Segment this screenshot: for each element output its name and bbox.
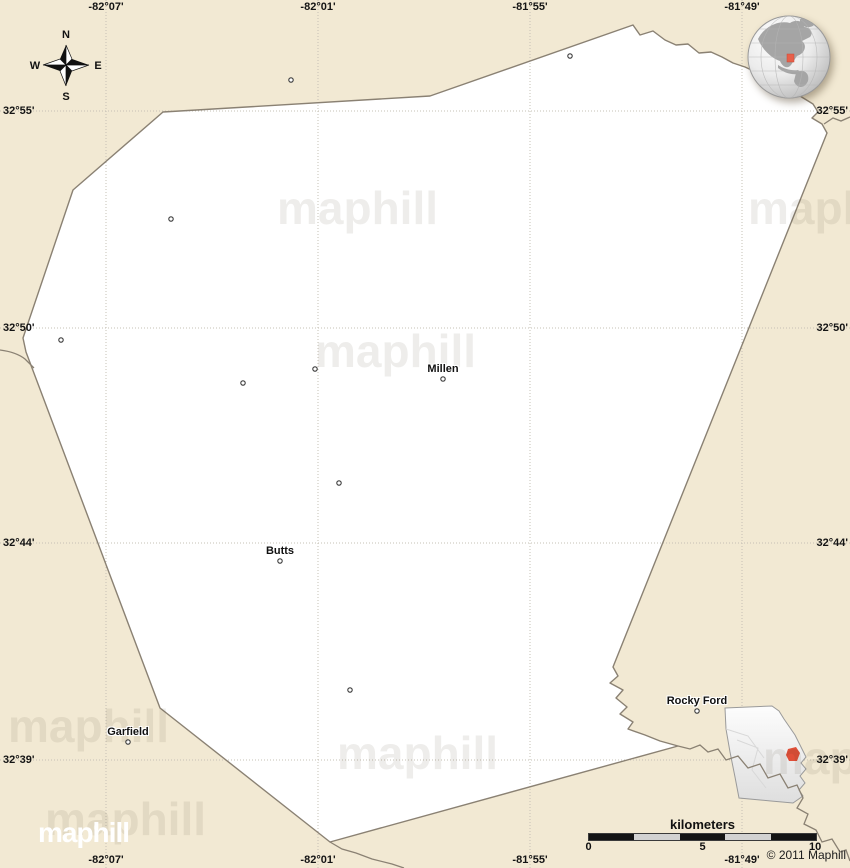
latitude-label-right: 32°39' [817,754,849,766]
settlement-dot [169,217,173,221]
compass-rose: N E S W [26,22,111,107]
town-dot [126,740,130,744]
settlement-dot [59,338,63,342]
settlement-dot [289,78,293,82]
town-label: Butts [266,545,294,557]
settlement-dot [313,367,317,371]
longitude-label-top: -82°01' [300,1,335,13]
latitude-label-left: 32°44' [3,537,35,549]
map-stage: N E S W maphill [0,0,850,868]
latitude-label-right: 32°44' [817,537,849,549]
scale-segment [634,834,679,840]
town-label: Rocky Ford [667,695,728,707]
longitude-label-top: -82°07' [88,1,123,13]
maphill-logo-text: maphill [38,819,129,847]
scale-tick-5: 5 [699,841,705,853]
scale-tick-0: 0 [586,841,592,853]
copyright-notice: © 2011 Maphill [767,848,846,862]
settlement-dot [337,481,341,485]
scale-bar-unit-label: kilometers [588,817,817,832]
compass-south-label: S [62,91,69,103]
latitude-label-right: 32°55' [817,105,849,117]
longitude-label-bottom: -82°01' [300,854,335,866]
latitude-label-left: 32°39' [3,754,35,766]
latitude-label-left: 32°50' [3,322,35,334]
town-dot [278,559,282,563]
town-label: Garfield [107,726,149,738]
compass-north-label: N [62,29,70,41]
globe-location-marker [787,54,794,62]
longitude-label-bottom: -81°49' [724,854,759,866]
longitude-label-top: -81°49' [724,1,759,13]
maphill-logo[interactable]: maphill [33,753,134,854]
scale-segment [680,834,725,840]
scale-segment [725,834,770,840]
locator-globe[interactable] [744,13,834,103]
town-label: Millen [427,363,458,375]
longitude-label-bottom: -81°55' [512,854,547,866]
settlement-dot [568,54,572,58]
scale-segment [589,834,634,840]
latitude-label-right: 32°50' [817,322,849,334]
compass-east-label: E [94,60,101,72]
town-dot [441,377,445,381]
longitude-label-top: -81°55' [512,1,547,13]
scale-segment [771,834,816,840]
longitude-label-bottom: -82°07' [88,854,123,866]
settlement-dot [241,381,245,385]
scale-bar-segments [588,833,817,841]
settlement-dot [348,688,352,692]
town-dot [695,709,699,713]
compass-star [43,45,89,86]
compass-west-label: W [30,60,41,72]
